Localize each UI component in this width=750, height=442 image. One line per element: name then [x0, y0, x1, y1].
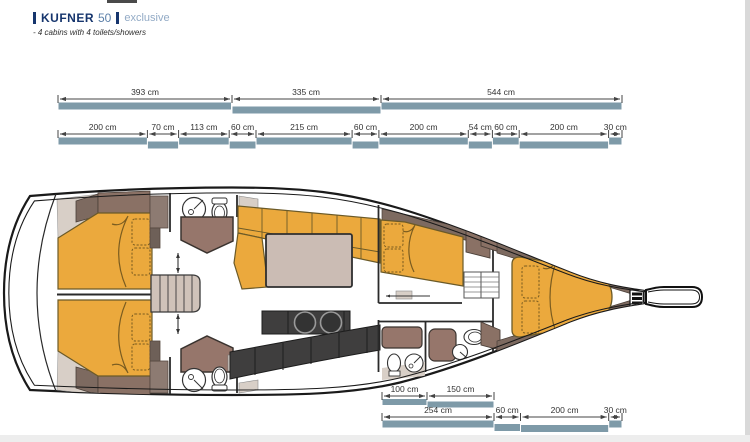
layout-subtitle: - 4 cabins with 4 toilets/showers [33, 28, 170, 37]
pillow [522, 301, 539, 333]
dim-label: 113 cm [190, 122, 217, 132]
dim-label: 60 cm [494, 122, 517, 132]
dim-bar [379, 138, 467, 145]
salon-table [266, 234, 352, 287]
aft-cabin-divider [56, 291, 153, 299]
dim-bar [495, 424, 521, 431]
yacht-hull-group [4, 188, 702, 399]
louvered-locker [481, 272, 499, 298]
dimension-row-bottom-upper: 100 cm 150 cm [382, 384, 494, 408]
page-edge-bottom [0, 435, 750, 442]
pillow [132, 314, 150, 341]
pillow [384, 224, 403, 247]
bowsprit [646, 287, 702, 307]
dim-bar [179, 138, 229, 145]
toilet [388, 354, 401, 372]
pillow [132, 219, 150, 245]
dim-label: 30 cm [604, 122, 627, 132]
dim-label: 200 cm [89, 122, 117, 132]
dim-bar [383, 421, 494, 428]
dim-bar [257, 138, 352, 145]
model-number: 50 [98, 11, 111, 25]
shower-pan [429, 329, 456, 361]
page-title: KUFNER 50 exclusive - 4 cabins with 4 to… [33, 11, 170, 37]
dim-bar [233, 107, 381, 114]
dim-bar [469, 142, 492, 149]
dim-label: 60 cm [496, 405, 519, 415]
toilet-tank [212, 198, 227, 204]
dimension-row-top-detail: 200 cm 70 cm 113 cm 60 cm 215 cm 60 cm 2… [58, 122, 627, 149]
edition-label: exclusive [124, 12, 169, 24]
dim-bar [230, 142, 256, 149]
floorplan-page: KUFNER 50 exclusive - 4 cabins with 4 to… [0, 0, 750, 442]
dim-bar [521, 425, 608, 432]
dim-bar [148, 142, 178, 149]
dim-label: 70 cm [151, 122, 174, 132]
dim-label: 200 cm [410, 122, 438, 132]
dim-bar [520, 142, 608, 149]
brand-right-bar [116, 12, 119, 24]
aft-cabin-port [57, 191, 152, 289]
aft-cabin-starboard [57, 300, 152, 398]
pillow [522, 266, 539, 298]
vanity [382, 327, 422, 348]
dim-bar [609, 421, 621, 428]
dim-label: 200 cm [551, 405, 579, 415]
dim-label: 60 cm [231, 122, 254, 132]
top-edge-artifact [107, 0, 137, 3]
sofa-corner-seat [234, 233, 268, 289]
dim-label: 60 cm [354, 122, 377, 132]
pillow [384, 249, 403, 272]
brand-left-bar [33, 12, 36, 24]
dim-label: 335 cm [292, 87, 320, 97]
dim-bar [353, 142, 379, 149]
yacht-floorplan-drawing: 393 cm 335 cm 544 cm [0, 0, 750, 442]
dim-label: 100 cm [391, 384, 419, 394]
dim-label: 544 cm [487, 87, 515, 97]
dim-bar [493, 138, 519, 145]
dimension-row-bottom-detail: 254 cm 60 cm 200 cm 30 cm [382, 405, 627, 432]
sink [295, 312, 316, 333]
dim-bar [59, 103, 232, 110]
dim-bar [383, 399, 427, 405]
pillow [132, 344, 150, 370]
page-edge-right [745, 0, 750, 442]
pillow [132, 248, 150, 275]
dim-label: 30 cm [604, 405, 627, 415]
dimension-row-top-sections: 393 cm 335 cm 544 cm [58, 87, 622, 114]
dim-label: 254 cm [424, 405, 452, 415]
dim-bar [609, 138, 621, 145]
dim-label: 150 cm [447, 384, 475, 394]
dim-bar [59, 138, 147, 145]
dim-label: 54 cm [469, 122, 492, 132]
sink [321, 312, 342, 333]
dim-bar [382, 103, 622, 110]
brand-line: KUFNER 50 exclusive [33, 11, 170, 24]
dim-label: 215 cm [290, 122, 318, 132]
dim-label: 200 cm [550, 122, 578, 132]
brand-name: KUFNER [41, 11, 94, 25]
dim-label: 393 cm [131, 87, 159, 97]
